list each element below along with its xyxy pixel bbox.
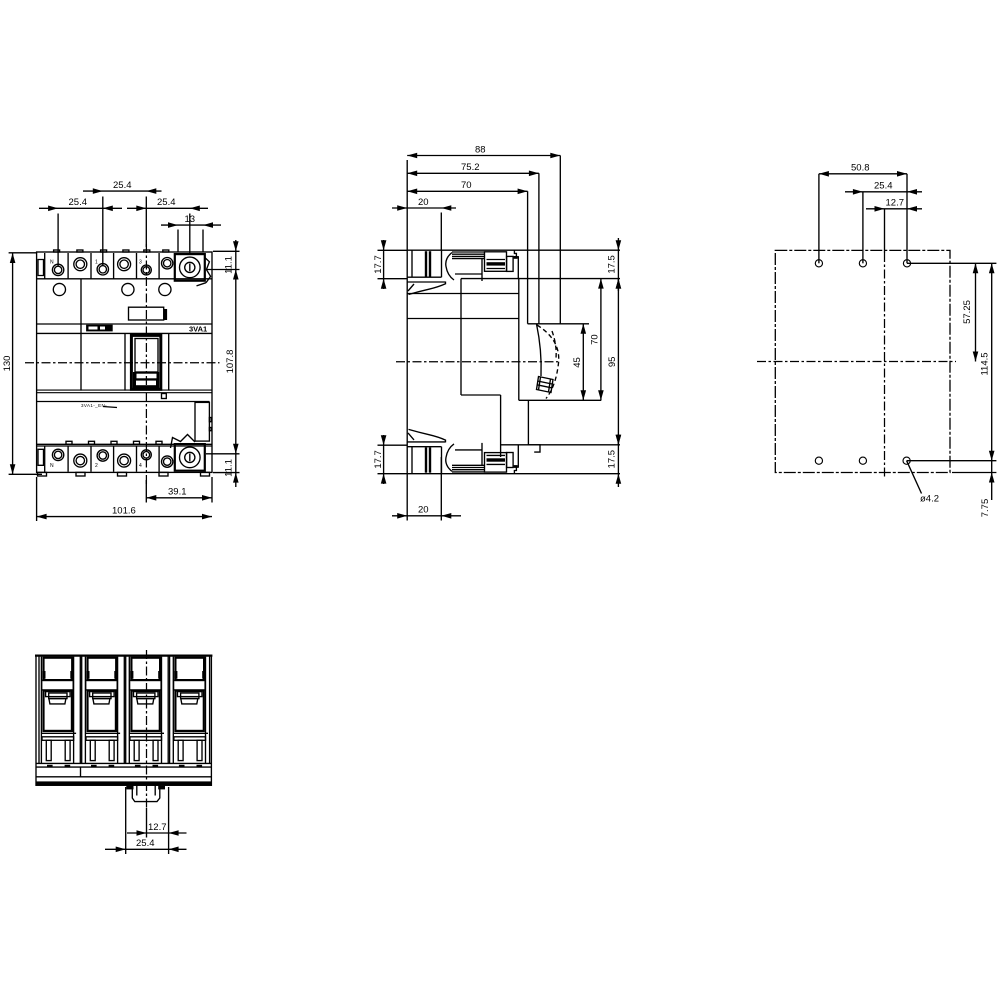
svg-text:17.7: 17.7 [373, 255, 384, 274]
svg-text:25.4: 25.4 [113, 180, 132, 191]
svg-text:17.5: 17.5 [606, 255, 617, 274]
svg-text:25.4: 25.4 [69, 197, 88, 208]
svg-text:25.4: 25.4 [874, 181, 893, 192]
svg-text:3VA1: 3VA1 [189, 325, 207, 334]
svg-text:13: 13 [185, 214, 196, 225]
svg-text:1: 1 [95, 260, 98, 266]
svg-text:4: 4 [139, 463, 142, 469]
svg-text:25.4: 25.4 [157, 197, 176, 208]
svg-text:12.7: 12.7 [148, 822, 167, 833]
svg-text:39.1: 39.1 [168, 487, 187, 498]
svg-text:N: N [50, 463, 54, 469]
svg-text:57.25: 57.25 [962, 300, 973, 324]
svg-text:75.2: 75.2 [461, 162, 480, 173]
svg-text:45: 45 [572, 357, 583, 368]
svg-text:N: N [50, 260, 54, 266]
svg-text:2: 2 [95, 463, 98, 469]
svg-text:20: 20 [418, 197, 429, 208]
svg-text:101.6: 101.6 [112, 505, 136, 516]
svg-text:11.1: 11.1 [224, 256, 235, 274]
svg-text:114.5: 114.5 [980, 352, 991, 375]
svg-text:130: 130 [2, 356, 13, 372]
svg-text:95: 95 [607, 357, 618, 368]
svg-text:17.7: 17.7 [373, 450, 384, 469]
svg-text:20: 20 [418, 505, 429, 516]
svg-text:3: 3 [139, 260, 142, 266]
svg-text:50.8: 50.8 [851, 163, 870, 174]
svg-text:107.8: 107.8 [225, 350, 236, 374]
svg-text:70: 70 [589, 334, 600, 345]
svg-text:12.7: 12.7 [886, 198, 905, 209]
svg-text:88: 88 [475, 144, 486, 155]
svg-text:ø4.2: ø4.2 [920, 494, 939, 505]
svg-text:7.75: 7.75 [980, 499, 991, 518]
svg-text:17.5: 17.5 [606, 450, 617, 469]
svg-text:70: 70 [461, 180, 472, 191]
svg-text:25.4: 25.4 [136, 838, 155, 849]
svg-text:11.1: 11.1 [224, 459, 235, 477]
